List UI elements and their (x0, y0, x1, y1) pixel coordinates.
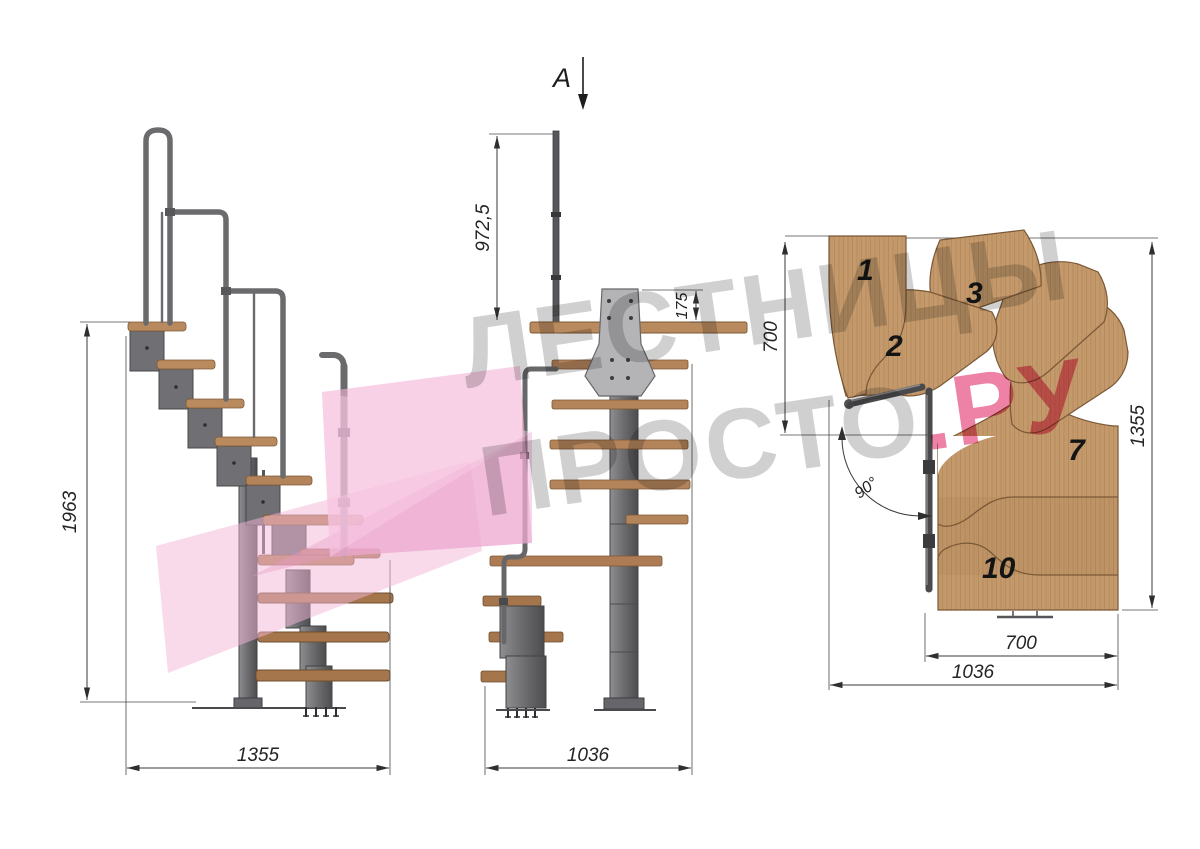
dimension-rail-height: 972,5 (473, 134, 553, 320)
rail-height-label: 972,5 (473, 204, 494, 252)
handrail-loop (146, 130, 170, 323)
drawing-canvas: 1963 1355 A (0, 0, 1200, 849)
dimension-plan-height: 1355 (1122, 242, 1158, 610)
plan-step-label-7: 7 (1068, 434, 1086, 467)
plan-baseplate (997, 611, 1053, 617)
front-width-label: 1036 (567, 745, 610, 766)
dimension-bracket: 175 (642, 290, 703, 322)
plan-step-label-2: 2 (885, 330, 903, 363)
side-height-label: 1963 (60, 490, 81, 533)
front-view-bracket-plate (585, 289, 655, 396)
section-cut-marker: A (551, 57, 588, 110)
plan-view: 1 2 3 7 10 700 1355 90° (761, 230, 1158, 690)
technical-drawing: 1963 1355 A (0, 0, 1200, 849)
front-view-rail-pole (551, 131, 561, 325)
plan-angle-label: 90° (852, 474, 882, 502)
plan-width-label: 1036 (952, 662, 995, 683)
plan-height-label: 1355 (1128, 404, 1149, 447)
bracket-label: 175 (674, 293, 691, 320)
section-cut-arrow-icon (578, 94, 588, 110)
plan-step-label-10: 10 (982, 552, 1016, 585)
plan-step-label-1: 1 (857, 254, 874, 287)
plan-fan-steps (829, 230, 1128, 433)
plan-run-top-label: 700 (761, 321, 782, 353)
plan-run-bottom-label: 700 (1005, 633, 1037, 654)
plan-step-label-3: 3 (966, 277, 983, 310)
side-width-label: 1355 (237, 745, 280, 766)
dimension-plan-angle: 90° (838, 426, 932, 520)
section-cut-label: A (551, 63, 571, 93)
